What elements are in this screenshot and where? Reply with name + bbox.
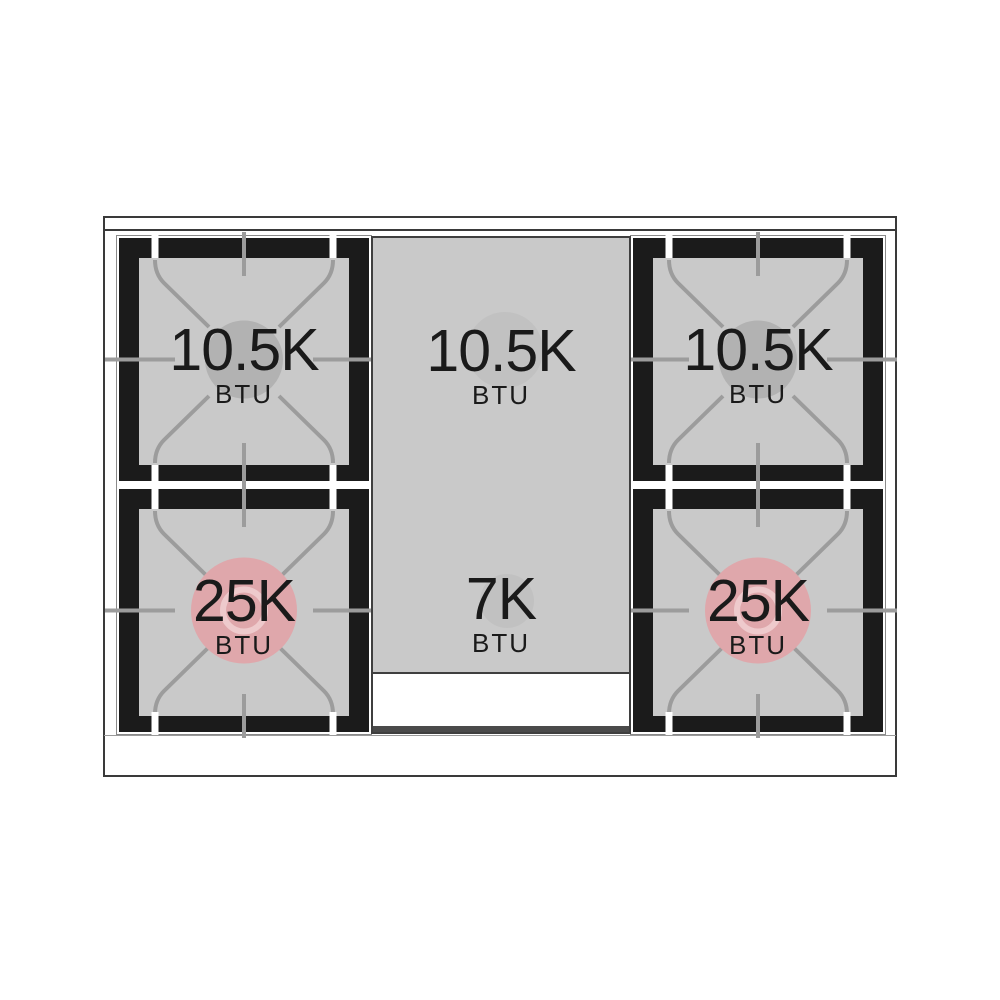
burner-btu-unit: BTU bbox=[119, 379, 369, 409]
burner-btu-unit: BTU bbox=[119, 630, 369, 660]
burner-btu-unit: BTU bbox=[633, 379, 883, 409]
griddle-front-trim bbox=[373, 674, 629, 726]
griddle-front-bar bbox=[373, 726, 629, 732]
cooktop-front-edge-line bbox=[104, 735, 896, 736]
burner-btu-value: 25K bbox=[119, 572, 369, 630]
burner-label-center-top: 10.5K BTU bbox=[373, 322, 629, 410]
cooktop-diagram: 10.5K BTU 10.5K BTU 10.5K BTU 25K BTU 7K… bbox=[0, 0, 1000, 1000]
backguard-edge-line bbox=[103, 229, 897, 231]
burner-btu-value: 7K bbox=[373, 570, 629, 628]
burner-btu-value: 10.5K bbox=[633, 321, 883, 379]
burner-btu-value: 10.5K bbox=[119, 321, 369, 379]
burner-label-top-left: 10.5K BTU bbox=[119, 321, 369, 409]
left-grate-module bbox=[116, 235, 372, 735]
burner-label-center-bottom: 7K BTU bbox=[373, 570, 629, 658]
burner-btu-value: 10.5K bbox=[373, 322, 629, 380]
burner-btu-unit: BTU bbox=[373, 380, 629, 410]
burner-btu-unit: BTU bbox=[373, 628, 629, 658]
burner-btu-unit: BTU bbox=[633, 630, 883, 660]
right-grate-module bbox=[630, 235, 886, 735]
burner-label-top-right: 10.5K BTU bbox=[633, 321, 883, 409]
burner-label-bottom-right: 25K BTU bbox=[633, 572, 883, 660]
burner-label-bottom-left: 25K BTU bbox=[119, 572, 369, 660]
center-griddle-panel bbox=[371, 236, 631, 734]
burner-btu-value: 25K bbox=[633, 572, 883, 630]
